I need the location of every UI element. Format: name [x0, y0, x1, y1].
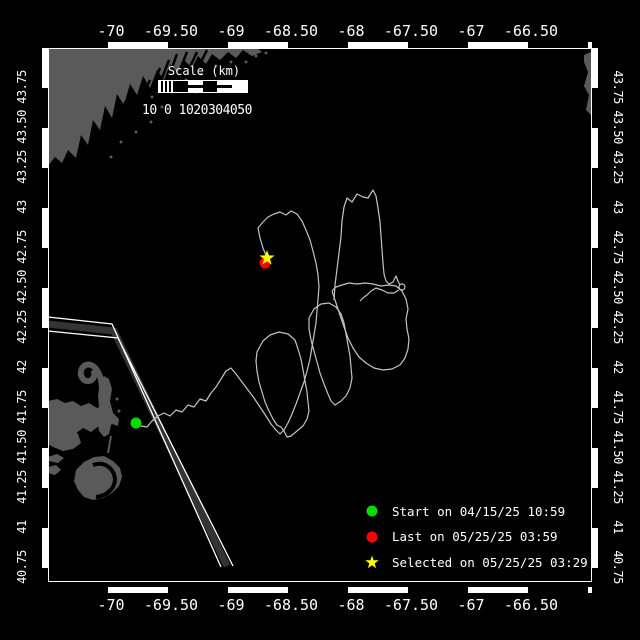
- lat-label-right: 42.75: [611, 230, 625, 264]
- lat-label-right: 42: [611, 360, 625, 373]
- lon-label-top: -66.50: [504, 22, 558, 40]
- lat-label-left: 42.75: [15, 230, 29, 264]
- lat-label-right: 43.50: [611, 110, 625, 144]
- landmass-maine-coast: [48, 48, 591, 166]
- lon-label-top: -68.50: [264, 22, 318, 40]
- lon-label-top: -69: [217, 22, 244, 40]
- lat-label-right: 43.75: [611, 70, 625, 104]
- lon-label-top: -67: [457, 22, 484, 40]
- lat-label-left: 41.75: [15, 390, 29, 424]
- track-map-viewer: -70-70-69.50-69.50-69-69-68.50-68.50-68-…: [0, 0, 640, 640]
- provincetown-hook: [81, 365, 102, 390]
- legend-label: Start on 04/15/25 10:59: [392, 504, 565, 519]
- glider-track-segment[interactable]: [332, 283, 409, 370]
- lon-label-bottom: -68: [337, 596, 364, 614]
- scale-bar-title: Scale (km): [159, 64, 249, 78]
- lat-label-left: 43: [15, 200, 29, 213]
- glider-track-segment[interactable]: [360, 288, 399, 301]
- lat-label-right: 41.50: [611, 430, 625, 464]
- lat-label-left: 41: [15, 520, 29, 533]
- lon-label-bottom: -69: [217, 596, 244, 614]
- start-marker[interactable]: [131, 418, 142, 429]
- lat-label-right: 42.50: [611, 270, 625, 304]
- lat-label-left: 42.50: [15, 270, 29, 304]
- lat-label-left: 42: [15, 360, 29, 373]
- track-markers: [131, 250, 275, 429]
- lon-label-top: -67.50: [384, 22, 438, 40]
- lat-label-right: 43.25: [611, 150, 625, 184]
- lon-label-bottom: -70: [97, 596, 124, 614]
- lat-label-left: 43.50: [15, 110, 29, 144]
- lat-label-right: 41: [611, 520, 625, 533]
- lat-label-right: 43: [611, 200, 625, 213]
- landmass-cape-cod: [48, 365, 121, 453]
- glider-track-knot: [399, 284, 405, 290]
- scale-seg-black: [203, 81, 217, 92]
- landmass-northeast-edge: [584, 52, 591, 115]
- glider-track-segment[interactable]: [136, 211, 319, 434]
- lat-label-left: 41.50: [15, 430, 29, 464]
- glider-track-segment[interactable]: [256, 332, 309, 437]
- legend-label: Last on 05/25/25 03:59: [392, 529, 558, 544]
- lat-label-right: 41.75: [611, 390, 625, 424]
- glider-track-segment[interactable]: [309, 303, 352, 405]
- glider-track[interactable]: [136, 190, 409, 437]
- scale-bar-labels: 10 0 1020304050: [142, 103, 252, 118]
- scale-bar: [158, 80, 248, 93]
- lat-label-left: 43.75: [15, 70, 29, 104]
- lat-label-right: 42.25: [611, 310, 625, 344]
- scale-seg-stripe: [217, 81, 232, 92]
- lon-label-top: -69.50: [144, 22, 198, 40]
- scale-seg-hatch: [159, 81, 173, 92]
- dot-icon: [358, 503, 384, 519]
- lon-label-bottom: -68.50: [264, 596, 318, 614]
- landmass-islands: [48, 454, 122, 500]
- lat-label-left: 41.25: [15, 470, 29, 504]
- lat-label-right: 41.25: [611, 470, 625, 504]
- legend-item-selected: Selected on 05/25/25 03:29: [358, 553, 588, 571]
- legend-label: Selected on 05/25/25 03:29: [392, 555, 588, 570]
- lat-label-left: 43.25: [15, 150, 29, 184]
- legend: Start on 04/15/25 10:59Last on 05/25/25 …: [358, 496, 598, 576]
- dot-icon: [358, 529, 384, 545]
- lat-label-left: 42.25: [15, 310, 29, 344]
- lon-label-bottom: -67.50: [384, 596, 438, 614]
- lat-label-right: 40.75: [611, 550, 625, 584]
- lat-label-left: 40.75: [15, 550, 29, 584]
- legend-item-start: Start on 04/15/25 10:59: [358, 502, 565, 520]
- lon-label-bottom: -66.50: [504, 596, 558, 614]
- lon-label-bottom: -69.50: [144, 596, 198, 614]
- star-icon: [358, 554, 384, 570]
- scale-seg-black: [173, 81, 188, 92]
- legend-item-last: Last on 05/25/25 03:59: [358, 528, 558, 546]
- scale-seg-white: [232, 81, 247, 92]
- lon-label-top: -68: [337, 22, 364, 40]
- scale-seg-stripe: [188, 81, 203, 92]
- lon-label-bottom: -67: [457, 596, 484, 614]
- lon-label-top: -70: [97, 22, 124, 40]
